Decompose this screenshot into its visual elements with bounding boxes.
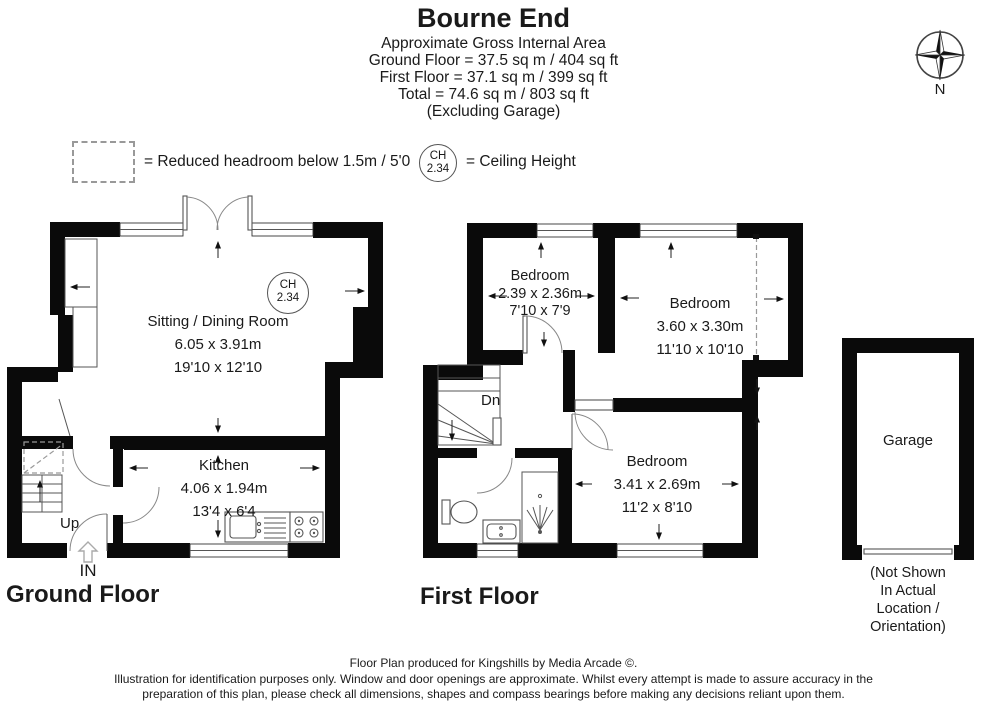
room-label-bedroom-large: Bedroom 3.60 x 3.30m 11'2 x 8'10 11'10 x… [656,292,743,361]
room-metric: 2.39 x 2.36m [498,286,582,304]
room-imperial: 7'10 x 7'9 [498,303,582,321]
area-excluding: (Excluding Garage) [0,103,987,120]
ch-value: 2.34 [268,292,308,305]
first-floor-plan [415,190,810,575]
entrance-arrow-icon [79,542,97,562]
stairs-up [22,475,62,512]
ground-floor-title: Ground Floor [6,581,159,609]
ceiling-height-badge-legend: CH 2.34 [419,144,457,182]
footer-line3: preparation of this plan, please check a… [0,687,987,703]
shower-icon [522,472,558,543]
ceiling-height-label: = Ceiling Height [466,153,576,171]
reduced-headroom-swatch [72,141,135,183]
room-imperial: 11'2 x 8'10 [614,496,701,519]
room-label-garage: Garage [883,432,933,449]
ch-abbr: CH [420,150,456,163]
ch-abbr: CH [268,279,308,292]
stairs-down-label: Dn [481,392,500,409]
sink-icon [483,520,520,543]
room-label-bedroom-third: Bedroom 3.41 x 2.69m 11'2 x 8'10 [614,450,701,519]
floorplan-page: Bourne End Approximate Gross Internal Ar… [0,0,987,720]
title-block: Bourne End Approximate Gross Internal Ar… [0,4,987,120]
entrance-label: IN [80,561,97,581]
hob-icon [290,512,323,542]
wardrobe-recess-line [753,234,759,360]
room-name: Bedroom [656,292,743,315]
room-imperial: 19'10 x 12'10 [148,356,289,379]
subtitle: Approximate Gross Internal Area [0,35,987,52]
ch-value: 2.34 [420,163,456,176]
room-name: Bedroom [614,450,701,473]
walls [842,338,974,560]
area-ground: Ground Floor = 37.5 sq m / 404 sq ft [0,52,987,69]
compass-north-label: N [935,81,946,96]
first-floor-title: First Floor [420,583,539,611]
french-doors [183,196,252,230]
garage-caption: (Not Shown In Actual Location / Orientat… [869,564,948,636]
room-name: Sitting / Dining Room [148,310,289,333]
room-metric: 3.41 x 2.69m [614,473,701,496]
room-metric: 4.06 x 1.94m [181,477,268,500]
garage-caption-line2: Location / Orientation) [869,600,948,636]
footer-line1: Floor Plan produced for Kingshills by Me… [0,656,987,672]
footer-line2: Illustration for identification purposes… [0,672,987,688]
room-label-sitting-dining: Sitting / Dining Room 6.05 x 3.91m 19'10… [148,310,289,379]
area-total: Total = 74.6 sq m / 803 sq ft [0,86,987,103]
compass-icon: N [908,22,972,96]
page-title: Bourne End [0,4,987,32]
toilet-icon [442,500,477,524]
room-metric: 6.05 x 3.91m [148,333,289,356]
room-metric: 3.60 x 3.30m [656,315,743,338]
garage-door [864,549,952,554]
room-imperial: 13'4 x 6'4 [181,500,268,523]
room-label-kitchen: Kitchen 4.06 x 1.94m 13'4 x 6'4 [181,454,268,523]
stairs-up-label: Up [60,515,79,532]
footer-disclaimer: Floor Plan produced for Kingshills by Me… [0,656,987,703]
room-imperial: 11'10 x 10'10 [656,338,743,361]
garage-caption-line1: (Not Shown In Actual [869,564,948,600]
room-label-bedroom-small: Bedroom 2.39 x 2.36m 7'10 x 7'9 [498,268,582,321]
area-first: First Floor = 37.1 sq m / 399 sq ft [0,69,987,86]
reduced-headroom-label: = Reduced headroom below 1.5m / 5'0 [144,153,410,171]
room-name: Kitchen [181,454,268,477]
ceiling-height-badge: CH 2.34 [267,272,309,314]
room-name: Bedroom [498,268,582,286]
